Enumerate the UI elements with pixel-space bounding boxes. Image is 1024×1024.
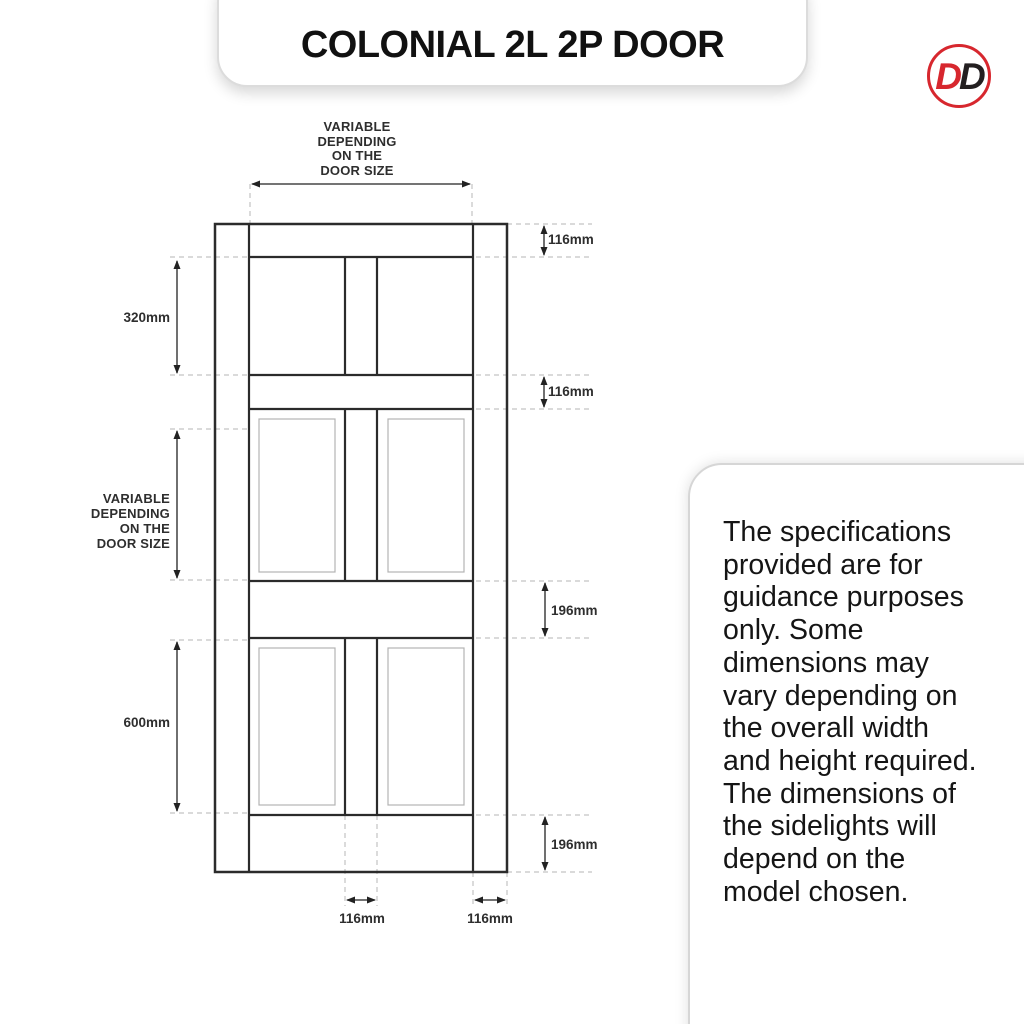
note-line: and height required. — [723, 745, 1023, 778]
dim-lock-rail: 196mm — [551, 603, 598, 618]
dimension-arrows — [177, 184, 545, 900]
dim-bottom-panel-height: 600mm — [90, 715, 170, 730]
left-variable-line1: VARIABLE — [40, 491, 170, 506]
note-line: model chosen. — [723, 876, 1023, 909]
note-line: the sidelights will — [723, 810, 1023, 843]
dim-light-height: 320mm — [90, 310, 170, 325]
spec-note-text: The specifications provided are for guid… — [723, 516, 1023, 908]
dim-mid-rail: 116mm — [548, 384, 594, 399]
note-line: The dimensions of — [723, 778, 1023, 811]
note-line: vary depending on — [723, 680, 1023, 713]
left-variable-line2: DEPENDING — [40, 506, 170, 521]
note-line: only. Some — [723, 614, 1023, 647]
page: COLONIAL 2L 2P DOOR D D — [0, 0, 1024, 1024]
dashed-guides — [170, 184, 592, 906]
note-line: dimensions may — [723, 647, 1023, 680]
dim-stile-width: 116mm — [450, 911, 530, 926]
dim-muntin-width: 116mm — [322, 911, 402, 926]
top-width-line3: ON THE — [277, 149, 437, 164]
top-width-line4: DOOR SIZE — [277, 164, 437, 179]
dim-bottom-rail: 196mm — [551, 837, 598, 852]
note-line: provided are for — [723, 549, 1023, 582]
top-width-label: VARIABLE DEPENDING ON THE DOOR SIZE — [277, 120, 437, 178]
panel-mouldings — [259, 419, 464, 805]
dim-top-rail: 116mm — [548, 232, 594, 247]
left-variable-line4: DOOR SIZE — [40, 536, 170, 551]
top-width-line1: VARIABLE — [277, 120, 437, 135]
note-line: guidance purposes — [723, 581, 1023, 614]
note-line: depend on the — [723, 843, 1023, 876]
note-line: The specifications — [723, 516, 1023, 549]
top-width-line2: DEPENDING — [277, 135, 437, 150]
left-variable-label: VARIABLE DEPENDING ON THE DOOR SIZE — [40, 491, 170, 551]
note-line: the overall width — [723, 712, 1023, 745]
left-variable-line3: ON THE — [40, 521, 170, 536]
